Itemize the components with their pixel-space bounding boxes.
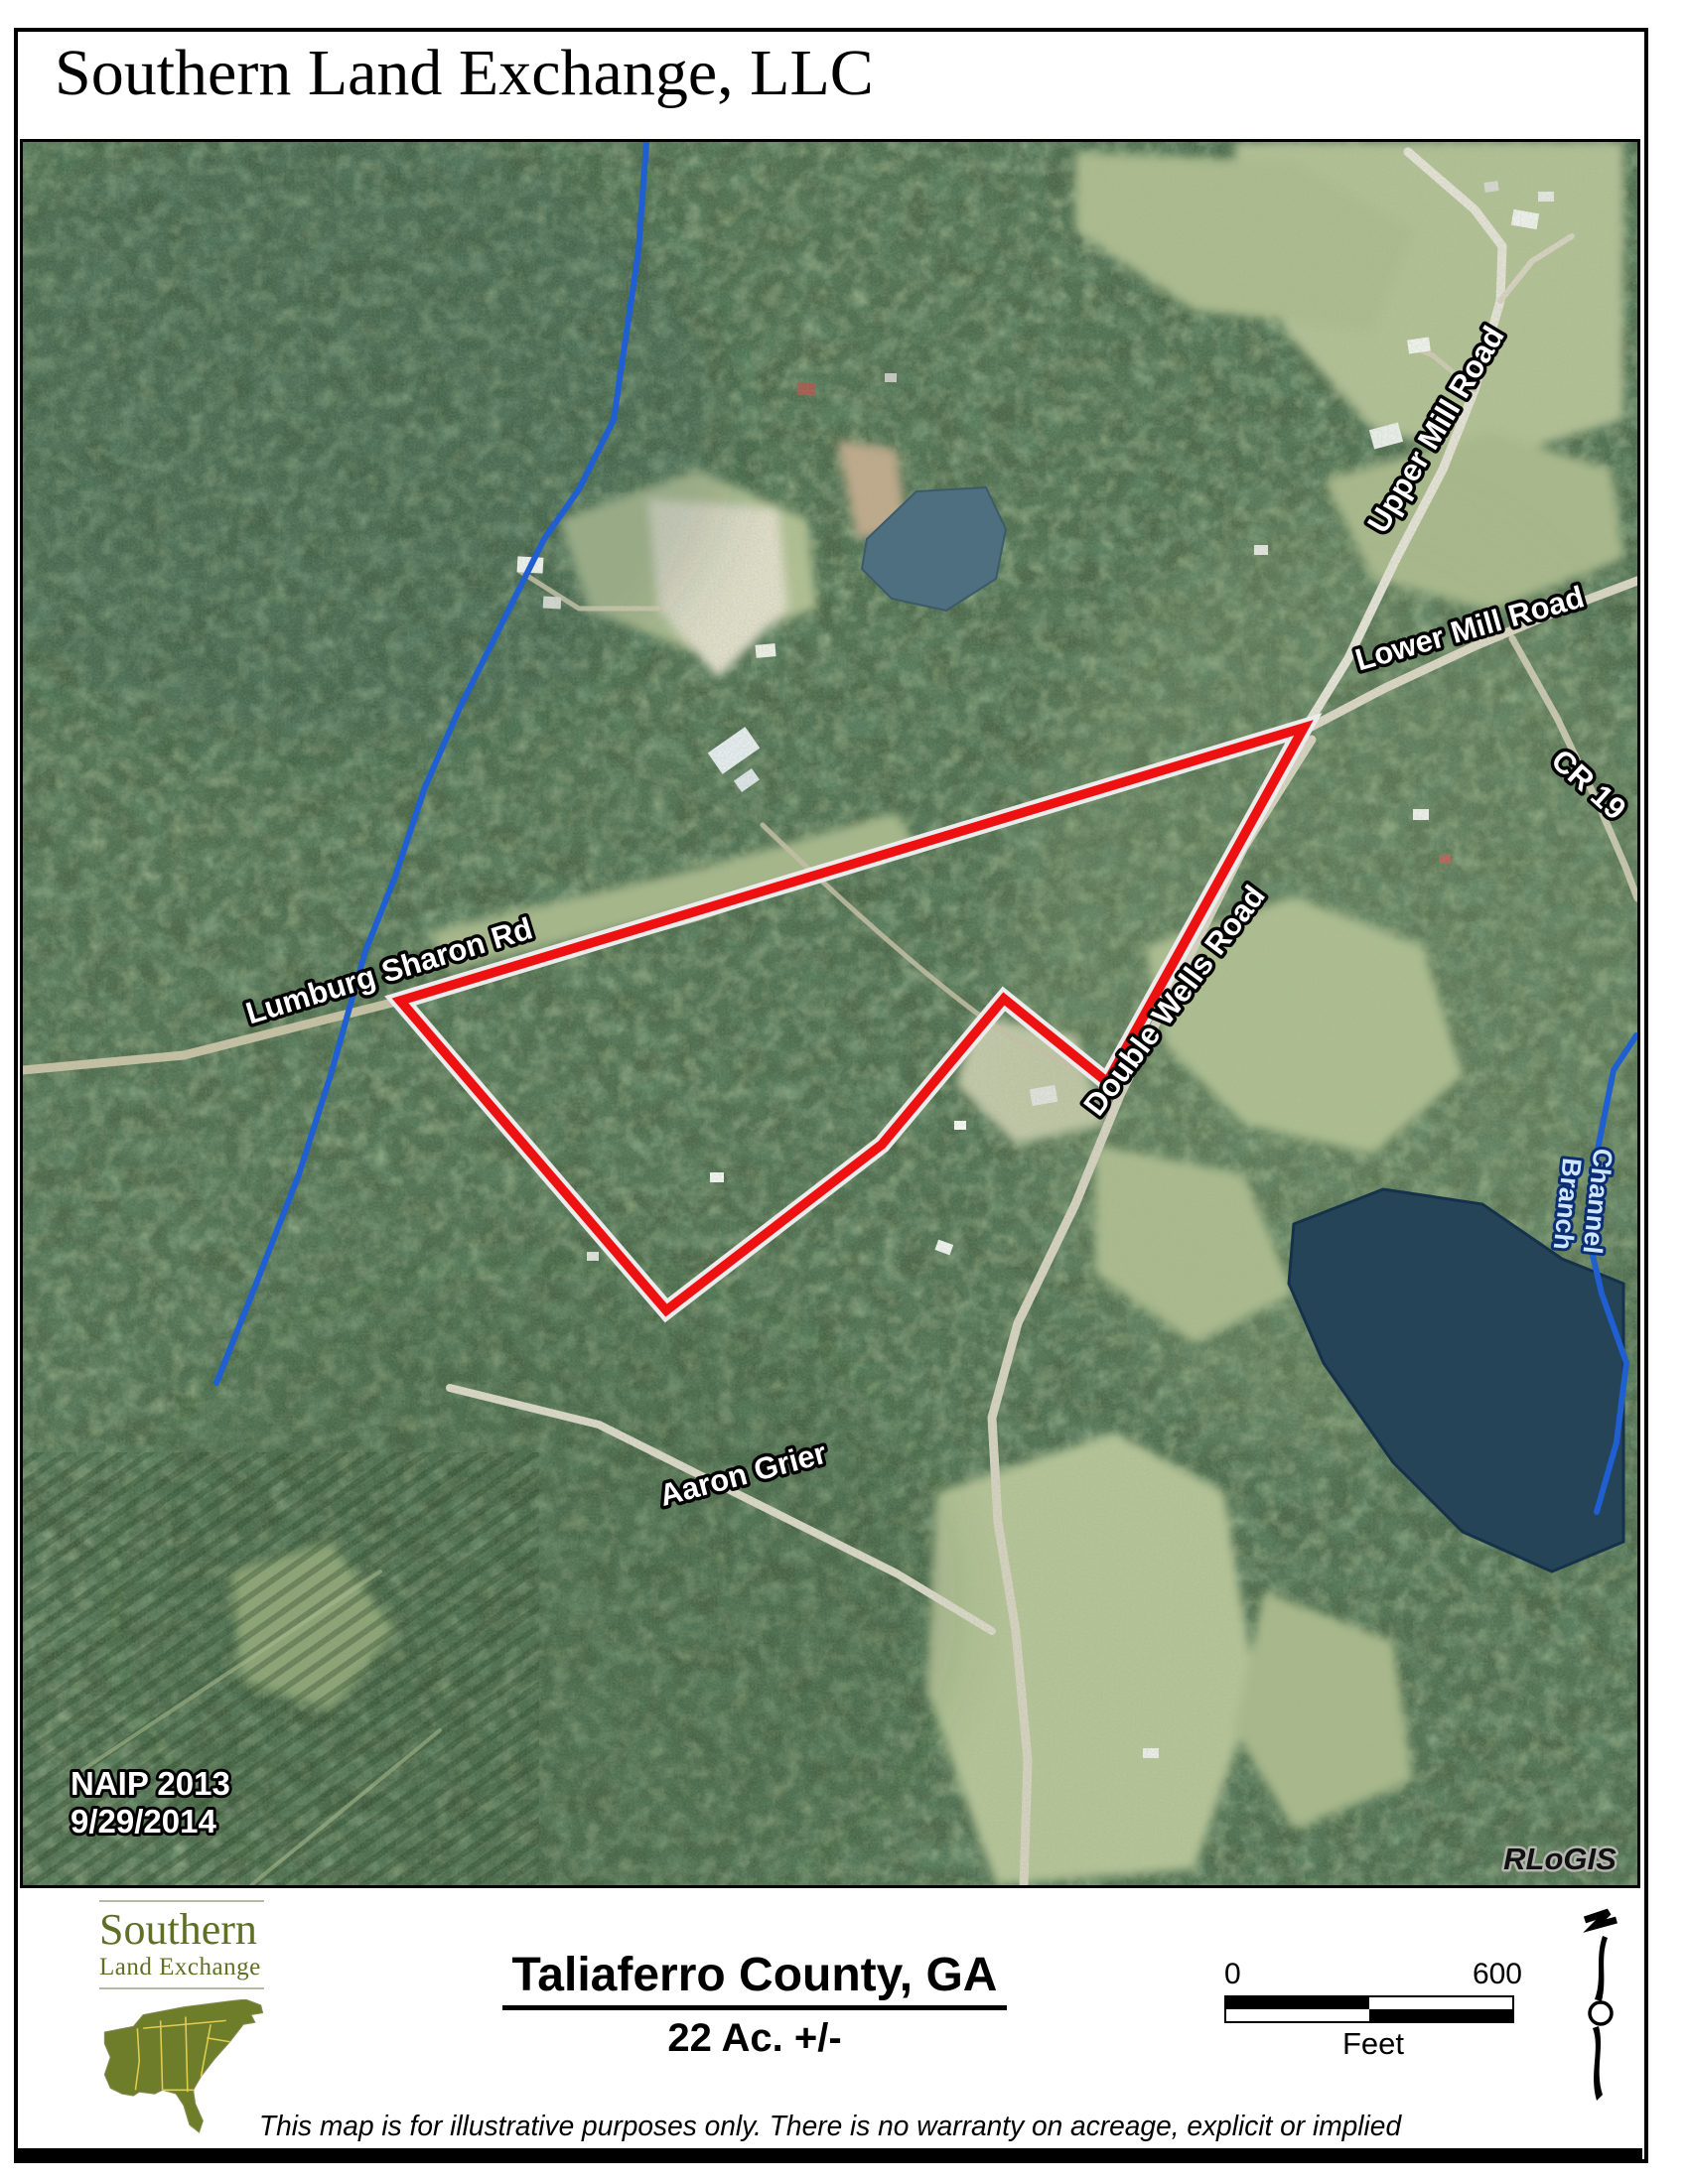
aerial-map: Upper Mill Road Lower Mill Road CR 19 Lu… bbox=[20, 139, 1640, 1888]
bottom-bar bbox=[18, 2148, 1642, 2163]
water-label-channel-branch: ChannelBranch bbox=[1548, 1144, 1618, 1255]
aerial-map-svg: Upper Mill Road Lower Mill Road CR 19 Lu… bbox=[23, 142, 1637, 1885]
company-title: Southern Land Exchange, LLC bbox=[55, 36, 1544, 131]
map-title-block: Taliaferro County, GA 22 Ac. +/- bbox=[417, 1948, 1092, 2061]
logo-name-line1: Southern bbox=[99, 1906, 268, 1954]
north-arrow-n-glyph bbox=[1585, 1912, 1617, 1926]
county-title: Taliaferro County, GA bbox=[502, 1948, 1008, 2010]
acreage: 22 Ac. +/- bbox=[417, 2016, 1092, 2061]
imagery-credit-line1: NAIP 2013 bbox=[70, 1765, 230, 1802]
map-flyer-page: Southern Land Exchange, LLC bbox=[0, 0, 1688, 2184]
logo-rule-top bbox=[99, 1900, 264, 1902]
scale-start: 0 bbox=[1224, 1958, 1241, 1991]
scale-unit: Feet bbox=[1224, 2026, 1522, 2062]
scale-bar: 0 600 Feet bbox=[1224, 1958, 1522, 2062]
gis-attribution: RLoGIS bbox=[1503, 1842, 1617, 1876]
north-arrow bbox=[1577, 1906, 1624, 2115]
logo-name-line2: Land Exchange bbox=[99, 1954, 268, 1981]
scale-bar-graphic bbox=[1224, 1995, 1514, 2023]
logo-rule-bottom bbox=[99, 1987, 264, 1989]
disclaimer: This map is for illustrative purposes on… bbox=[44, 2111, 1616, 2143]
scale-end: 600 bbox=[1473, 1958, 1522, 1991]
company-logo: Southern Land Exchange bbox=[99, 1900, 268, 2139]
imagery-credit-line2: 9/29/2014 bbox=[70, 1803, 216, 1840]
